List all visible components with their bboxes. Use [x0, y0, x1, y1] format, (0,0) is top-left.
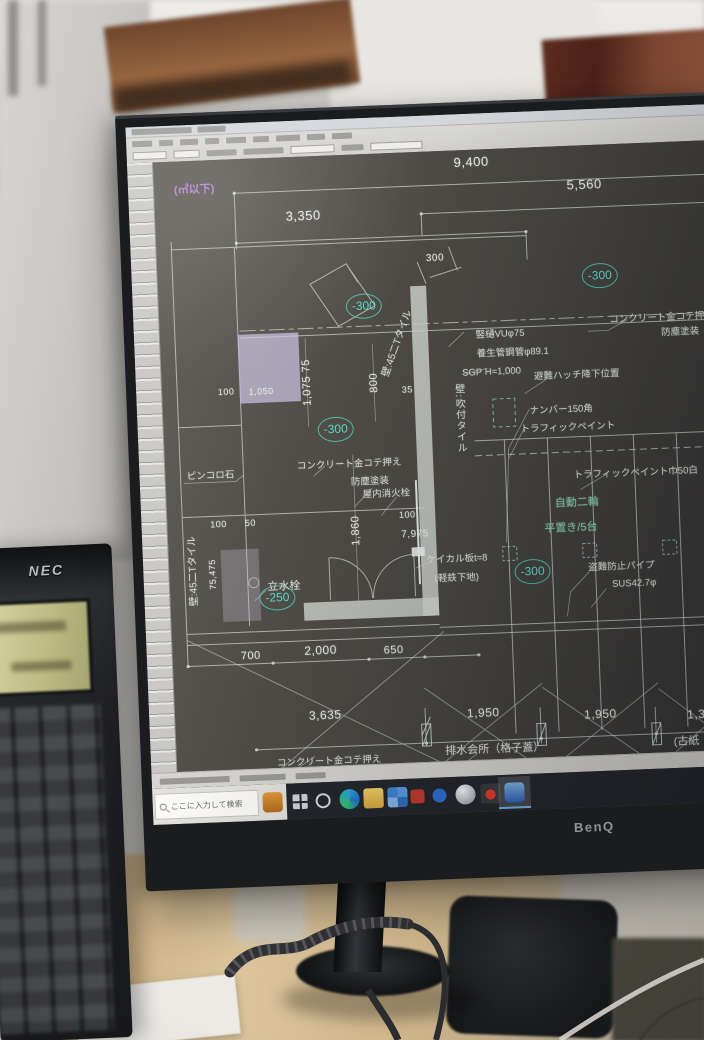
dimension-label: 800: [368, 373, 381, 393]
annotation: 竪樋VUφ75: [475, 325, 524, 341]
annotation: ピンコロ石: [186, 467, 234, 483]
annotation: 養生管鋼管φ89.1: [476, 343, 549, 360]
toolbar-button[interactable]: [206, 149, 236, 156]
monitor-brand-logo: BenQ: [574, 819, 615, 836]
annotation-green: 自動二輪: [555, 493, 600, 511]
wall-finish-note: 壁:吹付タイル: [451, 383, 469, 453]
window-title-blur: [197, 126, 225, 133]
wall-finish-note: 壁:45二Tタイル: [182, 536, 200, 607]
background-window-mullion: [38, 0, 46, 86]
lcd-text-blur: [0, 620, 66, 633]
dimension-label: 50: [245, 518, 256, 528]
file-explorer-icon[interactable]: [363, 788, 384, 809]
monitor: (㎡以下) 9,400 5,560 3,350 300 1,075 75 800…: [115, 91, 704, 891]
phone-top-panel: NEC: [0, 543, 113, 597]
dimension-label: 1,860: [349, 515, 362, 545]
annotation: 屋内消火栓: [362, 484, 410, 500]
annotation: 立水栓: [267, 577, 301, 594]
toolbar-field[interactable]: [370, 141, 422, 151]
menu-item[interactable]: [253, 136, 269, 143]
status-text-blur: [296, 772, 326, 779]
menu-item[interactable]: [132, 141, 152, 148]
annotation: 防塵塗装: [661, 323, 700, 339]
annotation: ケイカル板t=8: [426, 549, 487, 565]
phone-lcd-display: [0, 598, 94, 697]
toolbar-field[interactable]: [290, 144, 334, 154]
dimension-label: 2,000: [304, 643, 337, 658]
annotation: 盗難防止パイプ: [588, 557, 655, 574]
dimension-label: 5,560: [566, 176, 602, 192]
dimension-label: 3,350: [285, 207, 321, 223]
cortana-icon[interactable]: [315, 793, 331, 809]
menu-item[interactable]: [226, 137, 246, 144]
dimension-label: 1,075 75: [300, 359, 314, 406]
active-blue-app-icon[interactable]: [504, 782, 525, 803]
menu-item[interactable]: [276, 135, 300, 142]
search-input[interactable]: ここに入力して検索: [154, 790, 259, 820]
dimension-label: 700: [241, 650, 261, 663]
toolbar-button[interactable]: [341, 144, 363, 151]
screen: (㎡以下) 9,400 5,560 3,350 300 1,075 75 800…: [125, 103, 704, 825]
corner-area-note: (㎡以下): [174, 180, 215, 198]
cad-plan-linework: [153, 139, 704, 772]
sphere-app-icon[interactable]: [455, 784, 476, 805]
dimension-label: 1,375: [687, 706, 704, 721]
desk-cables: [0, 860, 704, 1040]
cad-drawing-canvas[interactable]: (㎡以下) 9,400 5,560 3,350 300 1,075 75 800…: [153, 139, 704, 772]
edge-browser-icon[interactable]: [339, 789, 360, 810]
annotation: SUS42.7φ: [612, 577, 657, 590]
toolbar-dropdown[interactable]: [132, 151, 166, 160]
menu-item[interactable]: [159, 140, 173, 147]
red-app-icon[interactable]: [410, 789, 425, 804]
menu-item[interactable]: [332, 133, 352, 140]
dimension-label: 100: [399, 509, 416, 520]
background-window-mullion: [8, 0, 18, 96]
dimension-label: 1,950: [584, 706, 617, 721]
annotation: ナンバー150角: [529, 400, 593, 417]
blue-app-icon[interactable]: [432, 788, 447, 803]
lcd-text-blur: [11, 660, 71, 672]
dimension-label: 650: [384, 644, 404, 657]
annotation-green: 平置き/5台: [544, 518, 598, 536]
dimension-label: 300: [426, 252, 445, 264]
orange-app-icon[interactable]: [262, 792, 283, 813]
menu-item[interactable]: [205, 138, 219, 145]
dimension-label: 100: [210, 519, 227, 530]
toolbar-button[interactable]: [243, 147, 283, 155]
photo-scene: NEC: [0, 0, 704, 1040]
annotation: SGP H=1,000: [462, 365, 521, 378]
dimension-label: 75,475: [207, 559, 218, 590]
dimension-label: 100: [218, 386, 235, 397]
menu-item[interactable]: [180, 139, 198, 146]
search-icon: [160, 803, 167, 810]
dimension-label: 1,050: [248, 386, 273, 397]
blue-tiles-app-icon[interactable]: [387, 787, 408, 808]
status-text-blur: [160, 775, 230, 784]
menu-item[interactable]: [307, 134, 325, 141]
dimension-label: 7,975: [401, 528, 429, 540]
dimension-label: 1,950: [467, 705, 500, 720]
annotation: (軽鉄下地): [434, 569, 479, 585]
task-view-icon[interactable]: [292, 794, 308, 810]
nec-logo: NEC: [28, 561, 64, 579]
status-text-blur: [240, 773, 286, 781]
annotation: (古紙: [673, 732, 699, 749]
dimension-label: 9,400: [453, 154, 489, 170]
dimension-label: 3,635: [309, 707, 342, 722]
window-title-blur: [132, 127, 192, 135]
toolbar-dropdown[interactable]: [173, 150, 199, 159]
white-cable: [560, 960, 704, 1040]
dimension-label: 35: [402, 384, 413, 394]
search-placeholder-text: ここに入力して検索: [171, 798, 243, 812]
